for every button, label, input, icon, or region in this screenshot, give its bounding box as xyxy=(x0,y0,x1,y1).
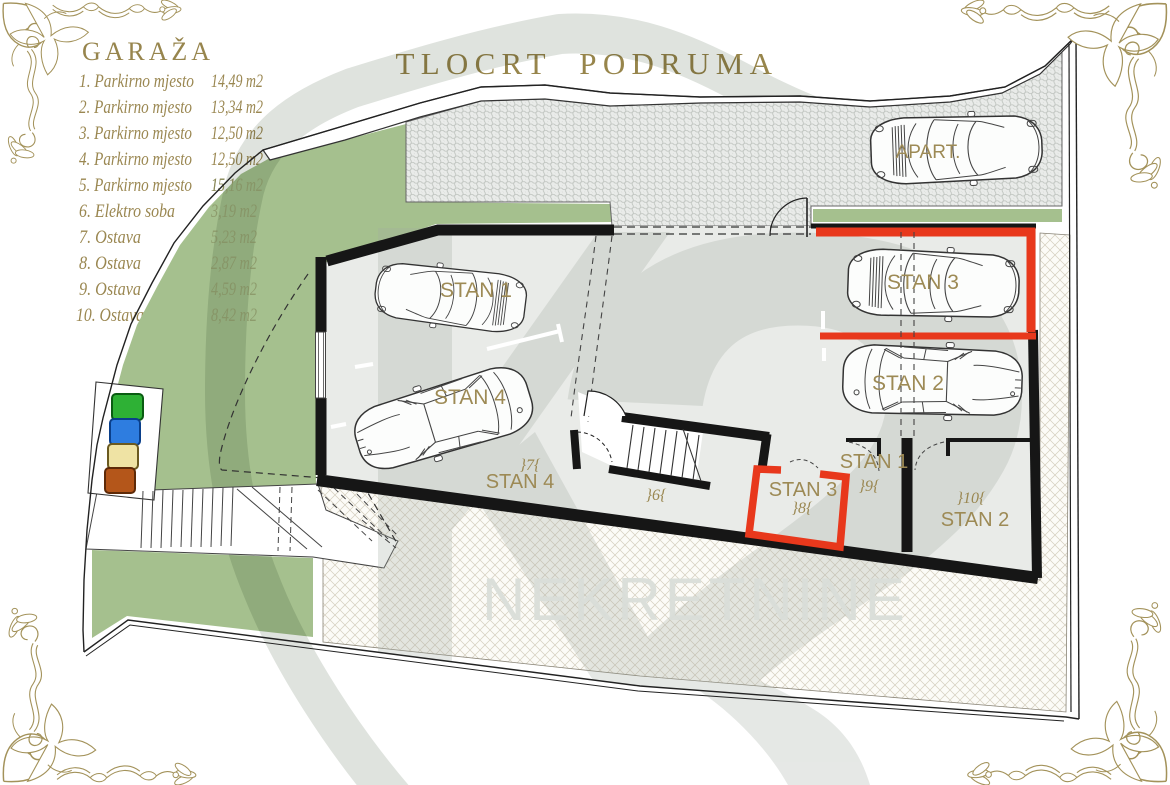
svg-text:14,49 m2: 14,49 m2 xyxy=(211,71,263,92)
svg-text:}6{: }6{ xyxy=(646,487,667,504)
svg-text:15,16 m2: 15,16 m2 xyxy=(211,175,263,196)
svg-text:8. Ostava: 8. Ostava xyxy=(79,253,141,274)
svg-text:STAN 1: STAN 1 xyxy=(840,451,909,473)
svg-text:STAN 3: STAN 3 xyxy=(769,479,838,501)
svg-text:STAN 2: STAN 2 xyxy=(941,509,1010,531)
svg-text:APART.: APART. xyxy=(896,142,961,163)
svg-text:7. Ostava: 7. Ostava xyxy=(79,227,141,248)
svg-text:5. Parkirno mjesto: 5. Parkirno mjesto xyxy=(79,175,192,196)
svg-text:1. Parkirno mjesto: 1. Parkirno mjesto xyxy=(79,71,194,92)
svg-text:STAN 3: STAN 3 xyxy=(887,271,959,294)
svg-text:3. Parkirno mjesto: 3. Parkirno mjesto xyxy=(78,123,192,144)
svg-text:5,23 m2: 5,23 m2 xyxy=(211,227,257,248)
svg-text:2,87 m2: 2,87 m2 xyxy=(211,253,257,274)
svg-text:13,34 m2: 13,34 m2 xyxy=(211,97,263,118)
svg-text:NEKRETNINE: NEKRETNINE xyxy=(482,566,909,633)
svg-text:GARAŽA: GARAŽA xyxy=(82,37,218,66)
svg-text:4,59 m2: 4,59 m2 xyxy=(211,279,257,300)
svg-text:STAN 4: STAN 4 xyxy=(486,471,555,493)
svg-text:8,42 m2: 8,42 m2 xyxy=(211,305,257,326)
svg-text:}10{: }10{ xyxy=(957,490,986,507)
svg-text:4. Parkirno mjesto: 4. Parkirno mjesto xyxy=(79,149,192,170)
svg-text:6. Elektro soba: 6. Elektro soba xyxy=(79,201,175,222)
svg-text:9. Ostava: 9. Ostava xyxy=(79,279,141,300)
svg-text:2. Parkirno mjesto: 2. Parkirno mjesto xyxy=(79,97,192,118)
svg-text:3,19 m2: 3,19 m2 xyxy=(210,201,257,222)
svg-text:STAN 1: STAN 1 xyxy=(440,279,512,302)
svg-text:}8{: }8{ xyxy=(792,500,813,517)
svg-text:}9{: }9{ xyxy=(859,478,880,495)
svg-text:10. Ostava: 10. Ostava xyxy=(76,305,144,326)
svg-text:}7{: }7{ xyxy=(520,457,541,474)
svg-text:STAN 4: STAN 4 xyxy=(434,386,506,409)
svg-text:STAN 2: STAN 2 xyxy=(872,372,944,395)
